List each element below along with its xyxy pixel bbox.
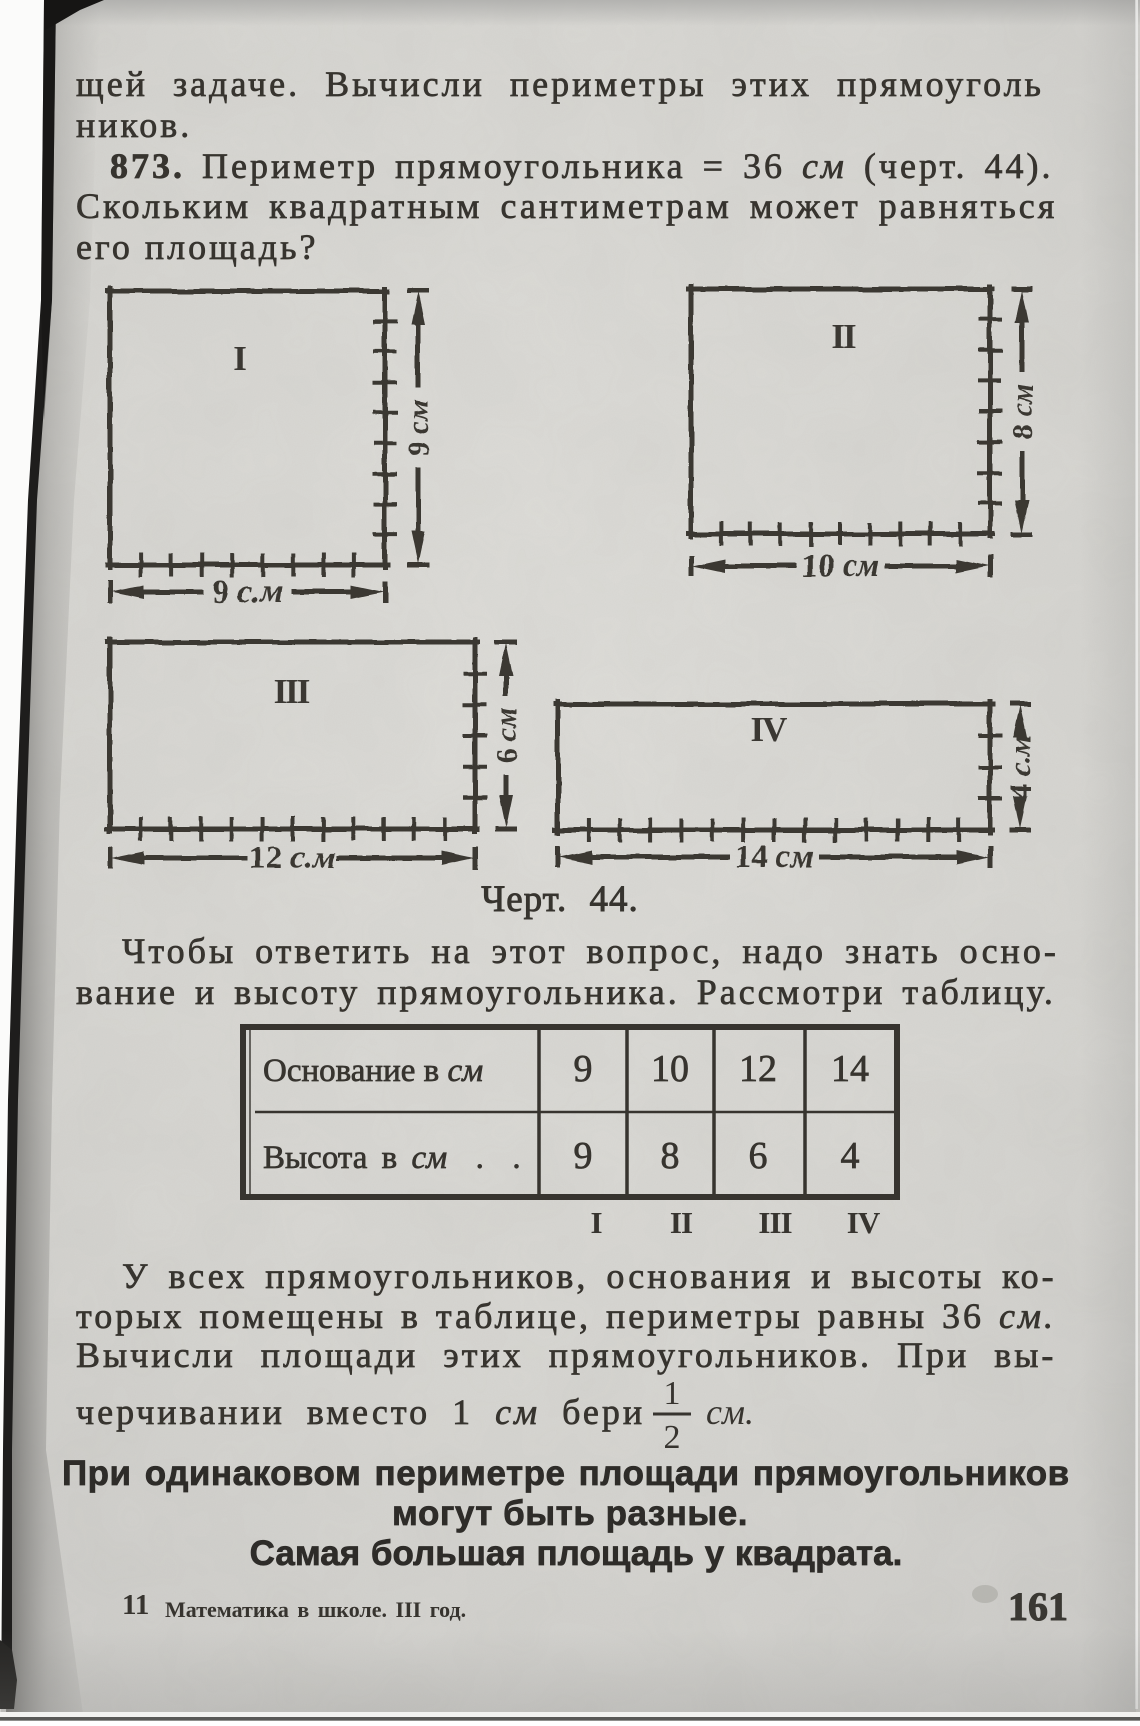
svg-text:При одинаковом периметре площа: При одинаковом периметре площади прямоуг… [62, 1454, 1070, 1493]
svg-text:4: 4 [841, 1135, 860, 1177]
svg-text:8: 8 [661, 1135, 680, 1177]
svg-text:9 см: 9 см [402, 400, 435, 456]
svg-text:14: 14 [831, 1048, 869, 1090]
svg-text:11: 11 [122, 1589, 149, 1621]
svg-text:его площадь?: его площадь? [76, 227, 319, 267]
svg-text:могут быть разные.: могут быть разные. [392, 1494, 748, 1533]
svg-text:торых помещены в таблице, пери: торых помещены в таблице, периметры равн… [76, 1296, 1056, 1336]
svg-text:Черт. 44.: Черт. 44. [481, 879, 639, 920]
svg-text:II: II [670, 1205, 693, 1240]
svg-text:ников.: ников. [76, 105, 192, 145]
svg-text:1: 1 [664, 1375, 681, 1412]
svg-text:2: 2 [664, 1419, 681, 1456]
svg-text:вание и высоту прямоугольника.: вание и высоту прямоугольника. Рассмотри… [76, 972, 1056, 1012]
svg-text:III: III [274, 672, 310, 711]
svg-text:Скольким квадратным сантиметра: Скольким квадратным сантиметрам может ра… [76, 186, 1057, 226]
svg-text:161: 161 [1008, 1584, 1068, 1629]
svg-text:III: III [758, 1205, 792, 1240]
svg-text:12: 12 [739, 1048, 777, 1090]
svg-text:IV: IV [847, 1205, 881, 1240]
svg-text:II: II [831, 317, 856, 356]
svg-text:9 с.м: 9 с.м [212, 574, 282, 610]
svg-text:см.: см. [706, 1392, 754, 1432]
svg-text:Высота в см . .: Высота в см . . [263, 1140, 521, 1176]
svg-text:I: I [590, 1205, 602, 1240]
svg-text:I: I [233, 339, 247, 378]
svg-text:9: 9 [574, 1135, 593, 1177]
svg-text:IV: IV [751, 710, 788, 749]
svg-text:9: 9 [574, 1048, 593, 1090]
svg-text:Математика в школе. III год.: Математика в школе. III год. [165, 1597, 466, 1622]
svg-text:8 см: 8 см [1006, 383, 1039, 439]
svg-text:Самая большая площадь у квадра: Самая большая площадь у квадрата. [250, 1534, 903, 1573]
svg-text:черчивании вместо 1 см бери: черчивании вместо 1 см бери [76, 1392, 645, 1432]
svg-text:10 см: 10 см [801, 548, 880, 584]
svg-text:14 см: 14 см [735, 839, 814, 875]
svg-text:6 см: 6 см [490, 707, 523, 763]
svg-text:Чтобы ответить на этот вопрос,: Чтобы ответить на этот вопрос, надо знат… [122, 931, 1059, 971]
svg-text:У всех прямоугольников, основа: У всех прямоугольников, основания и высо… [122, 1256, 1057, 1296]
svg-text:4 с.м: 4 с.м [1004, 735, 1037, 799]
svg-text:873. Периметр прямоугольника =: 873. Периметр прямоугольника = 36 см (че… [110, 146, 1054, 186]
svg-text:щей задаче. Вычисли периметры: щей задаче. Вычисли периметры этих прямо… [76, 64, 1044, 104]
svg-text:10: 10 [651, 1048, 689, 1090]
svg-text:6: 6 [749, 1135, 768, 1177]
svg-text:12 с.м: 12 с.м [249, 840, 336, 876]
svg-text:Вычисли площади этих прямоугол: Вычисли площади этих прямоугольников. Пр… [76, 1335, 1056, 1375]
svg-text:Основание в см: Основание в см [263, 1053, 483, 1089]
